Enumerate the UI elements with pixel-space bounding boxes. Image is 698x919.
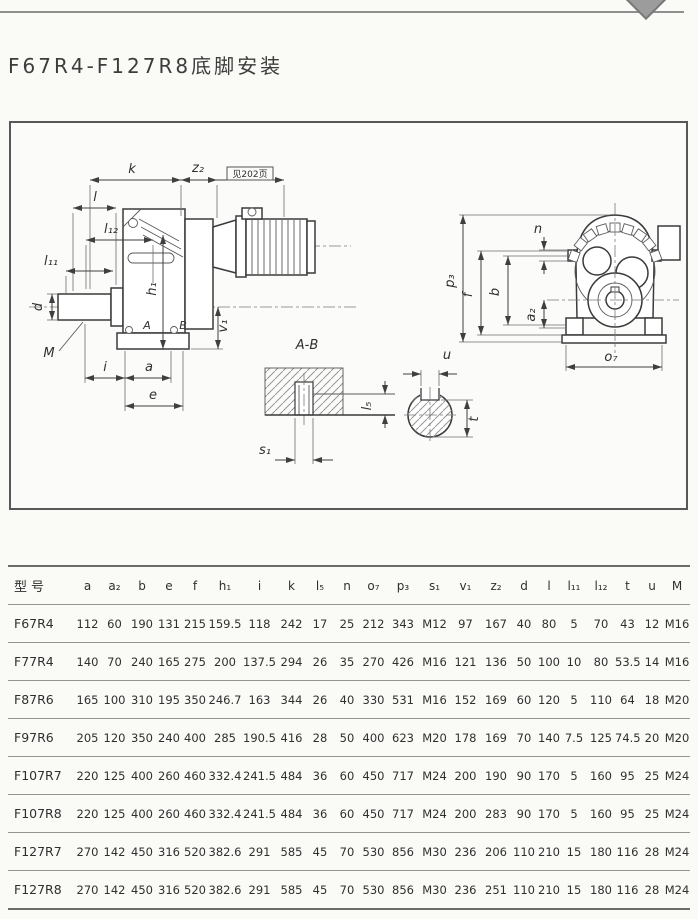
dim-cell: 7.5 bbox=[561, 719, 587, 757]
dim-label-u: u bbox=[443, 348, 451, 363]
dim-cell: 195 bbox=[156, 681, 182, 719]
dim-cell: 26 bbox=[306, 681, 334, 719]
dim-cell: 40 bbox=[334, 681, 360, 719]
dim-cell: 180 bbox=[587, 833, 615, 871]
dim-cell: 717 bbox=[387, 795, 419, 833]
col-header-o₇: o₇ bbox=[360, 566, 387, 605]
dim-cell: 120 bbox=[537, 681, 561, 719]
model-cell: F87R6 bbox=[8, 681, 74, 719]
dim-cell: 343 bbox=[387, 605, 419, 643]
dim-cell: 206 bbox=[481, 833, 511, 871]
dim-cell: 236 bbox=[450, 833, 481, 871]
dim-cell: 350 bbox=[128, 719, 156, 757]
dim-cell: 40 bbox=[511, 605, 537, 643]
dim-label-v1: v₁ bbox=[216, 320, 231, 333]
dim-cell: 70 bbox=[587, 605, 615, 643]
dim-cell: 116 bbox=[615, 871, 640, 910]
dim-cell: 400 bbox=[128, 757, 156, 795]
col-header-l₁₂: l₁₂ bbox=[587, 566, 615, 605]
dim-cell: 205 bbox=[74, 719, 101, 757]
dimension-table: 型号aa₂befh₁ikl₅no₇p₃s₁v₁z₂dll₁₁l₁₂tuM F67… bbox=[8, 565, 690, 910]
dim-cell: M20 bbox=[664, 681, 690, 719]
dim-cell: 270 bbox=[74, 871, 101, 910]
dim-cell: 416 bbox=[277, 719, 306, 757]
dim-cell: 270 bbox=[360, 643, 387, 681]
dim-cell: 5 bbox=[561, 795, 587, 833]
dim-cell: 25 bbox=[640, 757, 664, 795]
dim-cell: 332.4 bbox=[208, 757, 242, 795]
dim-label-l5: l₅ bbox=[360, 402, 375, 411]
dim-label-i: i bbox=[103, 360, 107, 375]
dim-cell: 90 bbox=[511, 795, 537, 833]
dim-cell: 285 bbox=[208, 719, 242, 757]
col-header-v₁: v₁ bbox=[450, 566, 481, 605]
table-row: F127R8270142450316520382.629158545705308… bbox=[8, 871, 690, 910]
model-cell: F67R4 bbox=[8, 605, 74, 643]
dim-cell: 120 bbox=[101, 719, 128, 757]
dim-cell: 28 bbox=[306, 719, 334, 757]
dim-cell: 50 bbox=[334, 719, 360, 757]
dim-label-s1: s₁ bbox=[259, 443, 271, 458]
dim-cell: M16 bbox=[419, 643, 450, 681]
dim-cell: 60 bbox=[334, 795, 360, 833]
dim-cell: M24 bbox=[664, 833, 690, 871]
dim-cell: 170 bbox=[537, 757, 561, 795]
dim-cell: 178 bbox=[450, 719, 481, 757]
dim-cell: 152 bbox=[450, 681, 481, 719]
dim-cell: 137.5 bbox=[242, 643, 277, 681]
dim-cell: 530 bbox=[360, 833, 387, 871]
dim-cell: 36 bbox=[306, 757, 334, 795]
dim-cell: 26 bbox=[306, 643, 334, 681]
dim-cell: 45 bbox=[306, 833, 334, 871]
col-header-b: b bbox=[128, 566, 156, 605]
dim-cell: 310 bbox=[128, 681, 156, 719]
dim-cell: 60 bbox=[511, 681, 537, 719]
dim-cell: 212 bbox=[360, 605, 387, 643]
dim-label-t: t bbox=[467, 416, 482, 422]
dim-cell: 210 bbox=[537, 833, 561, 871]
dim-cell: 80 bbox=[587, 643, 615, 681]
col-header-s₁: s₁ bbox=[419, 566, 450, 605]
dim-cell: 90 bbox=[511, 757, 537, 795]
dim-cell: 450 bbox=[128, 833, 156, 871]
dim-cell: M20 bbox=[664, 719, 690, 757]
dim-cell: 14 bbox=[640, 643, 664, 681]
dim-cell: 170 bbox=[537, 795, 561, 833]
dim-cell: 275 bbox=[182, 643, 208, 681]
dim-cell: 142 bbox=[101, 871, 128, 910]
model-cell: F127R8 bbox=[8, 871, 74, 910]
table-row: F67R411260190131215159.51182421725212343… bbox=[8, 605, 690, 643]
dim-cell: 241.5 bbox=[242, 757, 277, 795]
dim-cell: 25 bbox=[640, 795, 664, 833]
dim-cell: 60 bbox=[334, 757, 360, 795]
col-header-d: d bbox=[511, 566, 537, 605]
dim-cell: 20 bbox=[640, 719, 664, 757]
dim-cell: 131 bbox=[156, 605, 182, 643]
dim-cell: 344 bbox=[277, 681, 306, 719]
dim-cell: 856 bbox=[387, 871, 419, 910]
dim-cell: 460 bbox=[182, 757, 208, 795]
header-row: 型号aa₂befh₁ikl₅no₇p₃s₁v₁z₂dll₁₁l₁₂tuM bbox=[8, 566, 690, 605]
dim-cell: 159.5 bbox=[208, 605, 242, 643]
dim-cell: 18 bbox=[640, 681, 664, 719]
dim-cell: 200 bbox=[450, 757, 481, 795]
dim-cell: 165 bbox=[156, 643, 182, 681]
model-cell: F107R7 bbox=[8, 757, 74, 795]
dim-cell: M24 bbox=[664, 795, 690, 833]
dim-cell: 531 bbox=[387, 681, 419, 719]
col-header-e: e bbox=[156, 566, 182, 605]
dim-cell: 400 bbox=[182, 719, 208, 757]
dim-cell: 220 bbox=[74, 795, 101, 833]
dim-cell: 12 bbox=[640, 605, 664, 643]
section-title: A-B bbox=[295, 338, 319, 353]
dim-cell: 112 bbox=[74, 605, 101, 643]
dim-cell: 70 bbox=[511, 719, 537, 757]
dim-cell: 50 bbox=[511, 643, 537, 681]
dim-cell: 165 bbox=[74, 681, 101, 719]
section-a-b-view: A-B l₅ s₁ bbox=[259, 338, 395, 464]
top-divider bbox=[0, 11, 684, 13]
col-header-a₂: a₂ bbox=[101, 566, 128, 605]
dim-cell: 15 bbox=[561, 871, 587, 910]
dim-cell: 95 bbox=[615, 795, 640, 833]
dim-cell: 70 bbox=[101, 643, 128, 681]
dim-label-o7: o₇ bbox=[604, 350, 618, 365]
dim-cell: 190 bbox=[481, 757, 511, 795]
dim-cell: 136 bbox=[481, 643, 511, 681]
dim-cell: 5 bbox=[561, 605, 587, 643]
dim-cell: 15 bbox=[561, 833, 587, 871]
table-row: F87R6165100310195350246.7163344264033053… bbox=[8, 681, 690, 719]
dim-cell: 585 bbox=[277, 833, 306, 871]
section-mark-a: A bbox=[142, 319, 151, 332]
dim-label-a2: a₂ bbox=[524, 308, 539, 321]
dim-cell: 260 bbox=[156, 795, 182, 833]
dim-cell: 163 bbox=[242, 681, 277, 719]
dim-cell: 167 bbox=[481, 605, 511, 643]
dim-cell: 220 bbox=[74, 757, 101, 795]
dim-cell: 28 bbox=[640, 833, 664, 871]
dim-label-z2: z₂ bbox=[191, 161, 204, 176]
dim-cell: 484 bbox=[277, 757, 306, 795]
dim-cell: 64 bbox=[615, 681, 640, 719]
dim-cell: 100 bbox=[537, 643, 561, 681]
col-header-M: M bbox=[664, 566, 690, 605]
see-page-note: 见202页 bbox=[232, 169, 267, 180]
dim-cell: 382.6 bbox=[208, 871, 242, 910]
dim-cell: M16 bbox=[664, 605, 690, 643]
front-view: p₃ f b n a₂ o₇ bbox=[443, 203, 680, 371]
dim-cell: 121 bbox=[450, 643, 481, 681]
dim-cell: 215 bbox=[182, 605, 208, 643]
dim-cell: 316 bbox=[156, 871, 182, 910]
dim-cell: 530 bbox=[360, 871, 387, 910]
technical-drawing: k z₂ 见202页 l l₁₂ l₁₁ d bbox=[11, 123, 686, 508]
technical-drawing-panel: k z₂ 见202页 l l₁₂ l₁₁ d bbox=[9, 121, 688, 510]
dim-cell: 270 bbox=[74, 833, 101, 871]
dim-cell: 856 bbox=[387, 833, 419, 871]
dim-cell: 110 bbox=[587, 681, 615, 719]
dim-cell: 520 bbox=[182, 871, 208, 910]
dim-cell: 382.6 bbox=[208, 833, 242, 871]
dim-cell: 116 bbox=[615, 833, 640, 871]
dim-cell: 240 bbox=[128, 643, 156, 681]
col-header-a: a bbox=[74, 566, 101, 605]
dim-cell: M24 bbox=[419, 757, 450, 795]
dim-cell: 426 bbox=[387, 643, 419, 681]
dim-label-n: n bbox=[534, 222, 542, 237]
dim-cell: 70 bbox=[334, 833, 360, 871]
dim-cell: 450 bbox=[128, 871, 156, 910]
dim-cell: M30 bbox=[419, 871, 450, 910]
dim-cell: 53.5 bbox=[615, 643, 640, 681]
dim-cell: 400 bbox=[360, 719, 387, 757]
dim-cell: 294 bbox=[277, 643, 306, 681]
dim-cell: 350 bbox=[182, 681, 208, 719]
dim-cell: 70 bbox=[334, 871, 360, 910]
dim-cell: 140 bbox=[537, 719, 561, 757]
col-header-l₁₁: l₁₁ bbox=[561, 566, 587, 605]
dim-cell: 190 bbox=[128, 605, 156, 643]
dim-cell: 236 bbox=[450, 871, 481, 910]
dim-cell: 241.5 bbox=[242, 795, 277, 833]
dim-cell: 10 bbox=[561, 643, 587, 681]
dim-cell: 160 bbox=[587, 757, 615, 795]
dim-cell: 210 bbox=[537, 871, 561, 910]
dim-label-a: a bbox=[145, 360, 153, 375]
dim-label-l12: l₁₂ bbox=[104, 222, 118, 237]
col-header-l₅: l₅ bbox=[306, 566, 334, 605]
dim-cell: 585 bbox=[277, 871, 306, 910]
dim-cell: 140 bbox=[74, 643, 101, 681]
col-header-k: k bbox=[277, 566, 306, 605]
dim-cell: 45 bbox=[306, 871, 334, 910]
model-cell: F77R4 bbox=[8, 643, 74, 681]
dim-cell: 80 bbox=[537, 605, 561, 643]
dim-cell: 95 bbox=[615, 757, 640, 795]
dim-cell: 291 bbox=[242, 871, 277, 910]
col-header-l: l bbox=[537, 566, 561, 605]
shaft-section-view: u t bbox=[403, 348, 482, 443]
col-header-p₃: p₃ bbox=[387, 566, 419, 605]
table-row: F77R414070240165275200137.52942635270426… bbox=[8, 643, 690, 681]
col-header-h₁: h₁ bbox=[208, 566, 242, 605]
dim-cell: 25 bbox=[334, 605, 360, 643]
dim-cell: 623 bbox=[387, 719, 419, 757]
dim-cell: 330 bbox=[360, 681, 387, 719]
dim-cell: 450 bbox=[360, 757, 387, 795]
dim-cell: 110 bbox=[511, 833, 537, 871]
model-cell: F97R6 bbox=[8, 719, 74, 757]
col-header-u: u bbox=[640, 566, 664, 605]
col-header-z₂: z₂ bbox=[481, 566, 511, 605]
dim-cell: 717 bbox=[387, 757, 419, 795]
table-row: F107R8220125400260460332.4241.5484366045… bbox=[8, 795, 690, 833]
dim-cell: 400 bbox=[128, 795, 156, 833]
dim-cell: 246.7 bbox=[208, 681, 242, 719]
col-header-t: t bbox=[615, 566, 640, 605]
dim-cell: 291 bbox=[242, 833, 277, 871]
dim-cell: 240 bbox=[156, 719, 182, 757]
dim-cell: 260 bbox=[156, 757, 182, 795]
dim-cell: 180 bbox=[587, 871, 615, 910]
dim-cell: 125 bbox=[587, 719, 615, 757]
dim-cell: M24 bbox=[419, 795, 450, 833]
section-mark-b: B bbox=[179, 319, 187, 332]
col-header-i: i bbox=[242, 566, 277, 605]
dim-cell: 142 bbox=[101, 833, 128, 871]
dim-cell: M24 bbox=[664, 757, 690, 795]
page-title: F67R4-F127R8底脚安装 bbox=[8, 50, 283, 79]
col-header-model: 型号 bbox=[8, 566, 74, 605]
dim-cell: M30 bbox=[419, 833, 450, 871]
table-row: F127R7270142450316520382.629158545705308… bbox=[8, 833, 690, 871]
dim-cell: 125 bbox=[101, 757, 128, 795]
dim-cell: 100 bbox=[101, 681, 128, 719]
dim-cell: 60 bbox=[101, 605, 128, 643]
dim-cell: 450 bbox=[360, 795, 387, 833]
dim-cell: 169 bbox=[481, 719, 511, 757]
dim-cell: 97 bbox=[450, 605, 481, 643]
dim-cell: M24 bbox=[664, 871, 690, 910]
dim-cell: 520 bbox=[182, 833, 208, 871]
table-row: F107R7220125400260460332.4241.5484366045… bbox=[8, 757, 690, 795]
dim-label-e: e bbox=[149, 388, 157, 403]
dim-cell: 169 bbox=[481, 681, 511, 719]
col-header-n: n bbox=[334, 566, 360, 605]
dim-label-l: l bbox=[93, 190, 97, 205]
table-row: F97R6205120350240400285190.5416285040062… bbox=[8, 719, 690, 757]
dim-label-h1: h₁ bbox=[145, 282, 160, 295]
dim-cell: 484 bbox=[277, 795, 306, 833]
model-cell: F127R7 bbox=[8, 833, 74, 871]
dim-label-p3: p₃ bbox=[443, 274, 458, 288]
dim-cell: 74.5 bbox=[615, 719, 640, 757]
dim-cell: 316 bbox=[156, 833, 182, 871]
dim-cell: 35 bbox=[334, 643, 360, 681]
dim-label-l11: l₁₁ bbox=[44, 254, 58, 269]
dim-cell: 160 bbox=[587, 795, 615, 833]
dim-cell: 17 bbox=[306, 605, 334, 643]
dim-cell: 251 bbox=[481, 871, 511, 910]
dim-cell: 190.5 bbox=[242, 719, 277, 757]
dim-label-k: k bbox=[128, 162, 136, 177]
dim-cell: M16 bbox=[419, 681, 450, 719]
dim-cell: 36 bbox=[306, 795, 334, 833]
dim-cell: M16 bbox=[664, 643, 690, 681]
dim-cell: 5 bbox=[561, 757, 587, 795]
col-header-f: f bbox=[182, 566, 208, 605]
dim-cell: M20 bbox=[419, 719, 450, 757]
dim-cell: 28 bbox=[640, 871, 664, 910]
dim-cell: 460 bbox=[182, 795, 208, 833]
dim-cell: 332.4 bbox=[208, 795, 242, 833]
dim-cell: 200 bbox=[450, 795, 481, 833]
dim-label-b: b bbox=[488, 288, 503, 296]
dim-cell: 43 bbox=[615, 605, 640, 643]
dim-cell: 5 bbox=[561, 681, 587, 719]
dim-cell: 242 bbox=[277, 605, 306, 643]
dim-cell: 200 bbox=[208, 643, 242, 681]
dim-cell: M12 bbox=[419, 605, 450, 643]
dim-cell: 125 bbox=[101, 795, 128, 833]
dim-cell: 110 bbox=[511, 871, 537, 910]
catalog-page: F67R4-F127R8底脚安装 bbox=[0, 0, 698, 919]
dim-cell: 118 bbox=[242, 605, 277, 643]
dim-label-m: M bbox=[43, 346, 54, 361]
dim-label-d: d bbox=[31, 302, 46, 311]
dim-cell: 283 bbox=[481, 795, 511, 833]
model-cell: F107R8 bbox=[8, 795, 74, 833]
